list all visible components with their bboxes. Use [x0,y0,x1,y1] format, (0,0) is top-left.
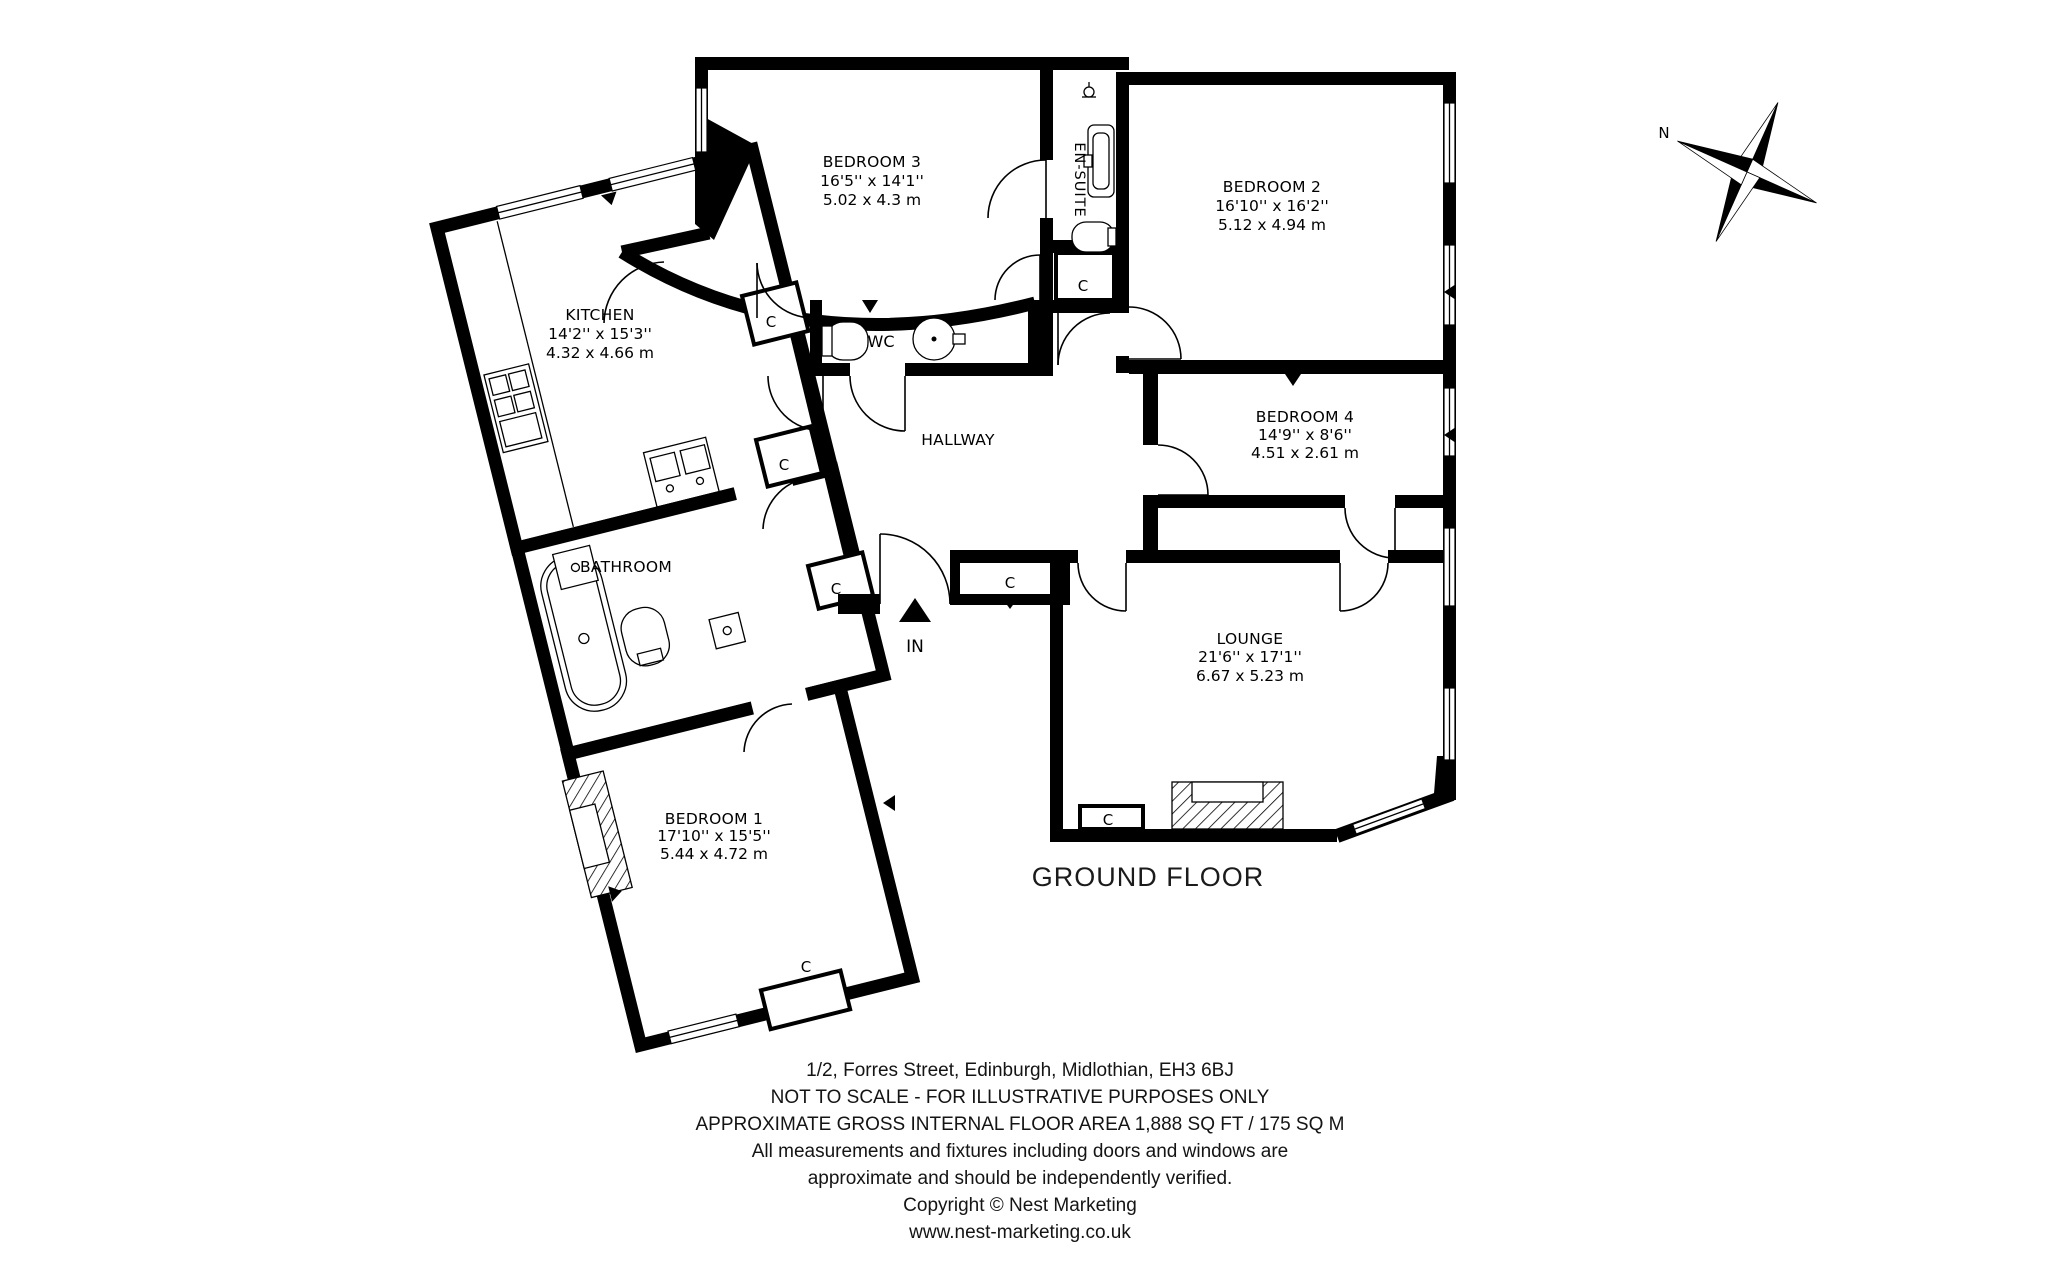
closet-label: C [831,580,841,598]
bedroom2-imperial: 16'10'' x 16'2'' [1215,197,1329,215]
entrance-label: IN [906,637,924,657]
kitchen-metric: 4.32 x 4.66 m [546,344,654,362]
fireplace-icon [1172,782,1283,829]
toilet-icon [822,322,868,360]
bedroom4-metric: 4.51 x 2.61 m [1251,444,1359,462]
wall [695,57,1129,70]
closet-label: C [1078,277,1088,295]
bathroom-label: BATHROOM [580,558,672,576]
footer-disclaimer-measurements-1: All measurements and fixtures including … [752,1141,1289,1162]
wall [1158,495,1345,508]
sink-icon [709,612,745,648]
compass-north-label: N [1658,124,1669,142]
kitchen-name: KITCHEN [565,306,634,324]
lounge-imperial: 21'6'' x 17'1'' [1198,648,1302,666]
closet-label: C [779,456,789,474]
wall [1116,85,1129,303]
lounge-name: LOUNGE [1217,630,1284,648]
wall [1116,356,1129,373]
wall [1040,218,1053,313]
closet-label: C [801,958,811,976]
closet-label: C [1005,574,1015,592]
wall [838,594,880,614]
footer-text: 1/2, Forres Street, Edinburgh, Midlothia… [695,1060,1344,1243]
footer-disclaimer-scale: NOT TO SCALE - FOR ILLUSTRATIVE PURPOSES… [771,1087,1270,1108]
wall [1050,563,1063,842]
wall [1028,300,1053,376]
bedroom2-name: BEDROOM 2 [1223,178,1321,196]
wc-label: WC [868,332,895,351]
bedroom4-imperial: 14'9'' x 8'6'' [1258,426,1352,444]
ensuite-label: EN-SUITE [1071,142,1087,217]
hallway-label: HALLWAY [921,431,995,449]
bedroom3-name: BEDROOM 3 [823,153,921,171]
bedroom3-metric: 5.02 x 4.3 m [823,191,921,209]
wall [1433,756,1456,806]
bedroom1-imperial: 17'10'' x 15'5'' [657,827,771,845]
bedroom4-name: BEDROOM 4 [1256,408,1354,426]
shower-head-icon [1082,82,1096,97]
compass-icon [1647,72,1848,273]
wall [1143,374,1158,445]
bedroom2-metric: 5.12 x 4.94 m [1218,216,1326,234]
wall [905,363,1040,376]
bedroom1-metric: 5.44 x 4.72 m [660,845,768,863]
dimension-markers [862,57,1456,841]
wall [1126,550,1340,563]
ensuite-toilet-icon [1072,222,1116,252]
floorplan-page: IN N BEDROOM 3 16'5'' x 14'1'' 5.02 x 4.… [0,0,2048,1280]
entrance-arrow-icon [899,598,931,622]
ensuite-sink-icon [1084,125,1114,197]
wall [810,363,850,376]
closet-label: C [1103,811,1113,829]
kitchen-imperial: 14'2'' x 15'3'' [548,325,652,343]
footer-website: www.nest-marketing.co.uk [908,1222,1131,1243]
bedroom1-name: BEDROOM 1 [665,810,763,828]
floorplan-drawing: IN N BEDROOM 3 16'5'' x 14'1'' 5.02 x 4.… [0,0,2048,1280]
bedroom3-imperial: 16'5'' x 14'1'' [820,172,924,190]
wall [1395,495,1443,508]
footer-disclaimer-measurements-2: approximate and should be independently … [808,1168,1233,1189]
footer-copyright: Copyright © Nest Marketing [903,1195,1137,1216]
lounge-metric: 6.67 x 5.23 m [1196,667,1304,685]
wall [1040,300,1129,313]
footer-address: 1/2, Forres Street, Edinburgh, Midlothia… [806,1060,1234,1081]
closet-label: C [766,313,776,331]
floor-title: GROUND FLOOR [1032,862,1265,892]
footer-area: APPROXIMATE GROSS INTERNAL FLOOR AREA 1,… [695,1114,1344,1135]
wall [1040,63,1053,160]
